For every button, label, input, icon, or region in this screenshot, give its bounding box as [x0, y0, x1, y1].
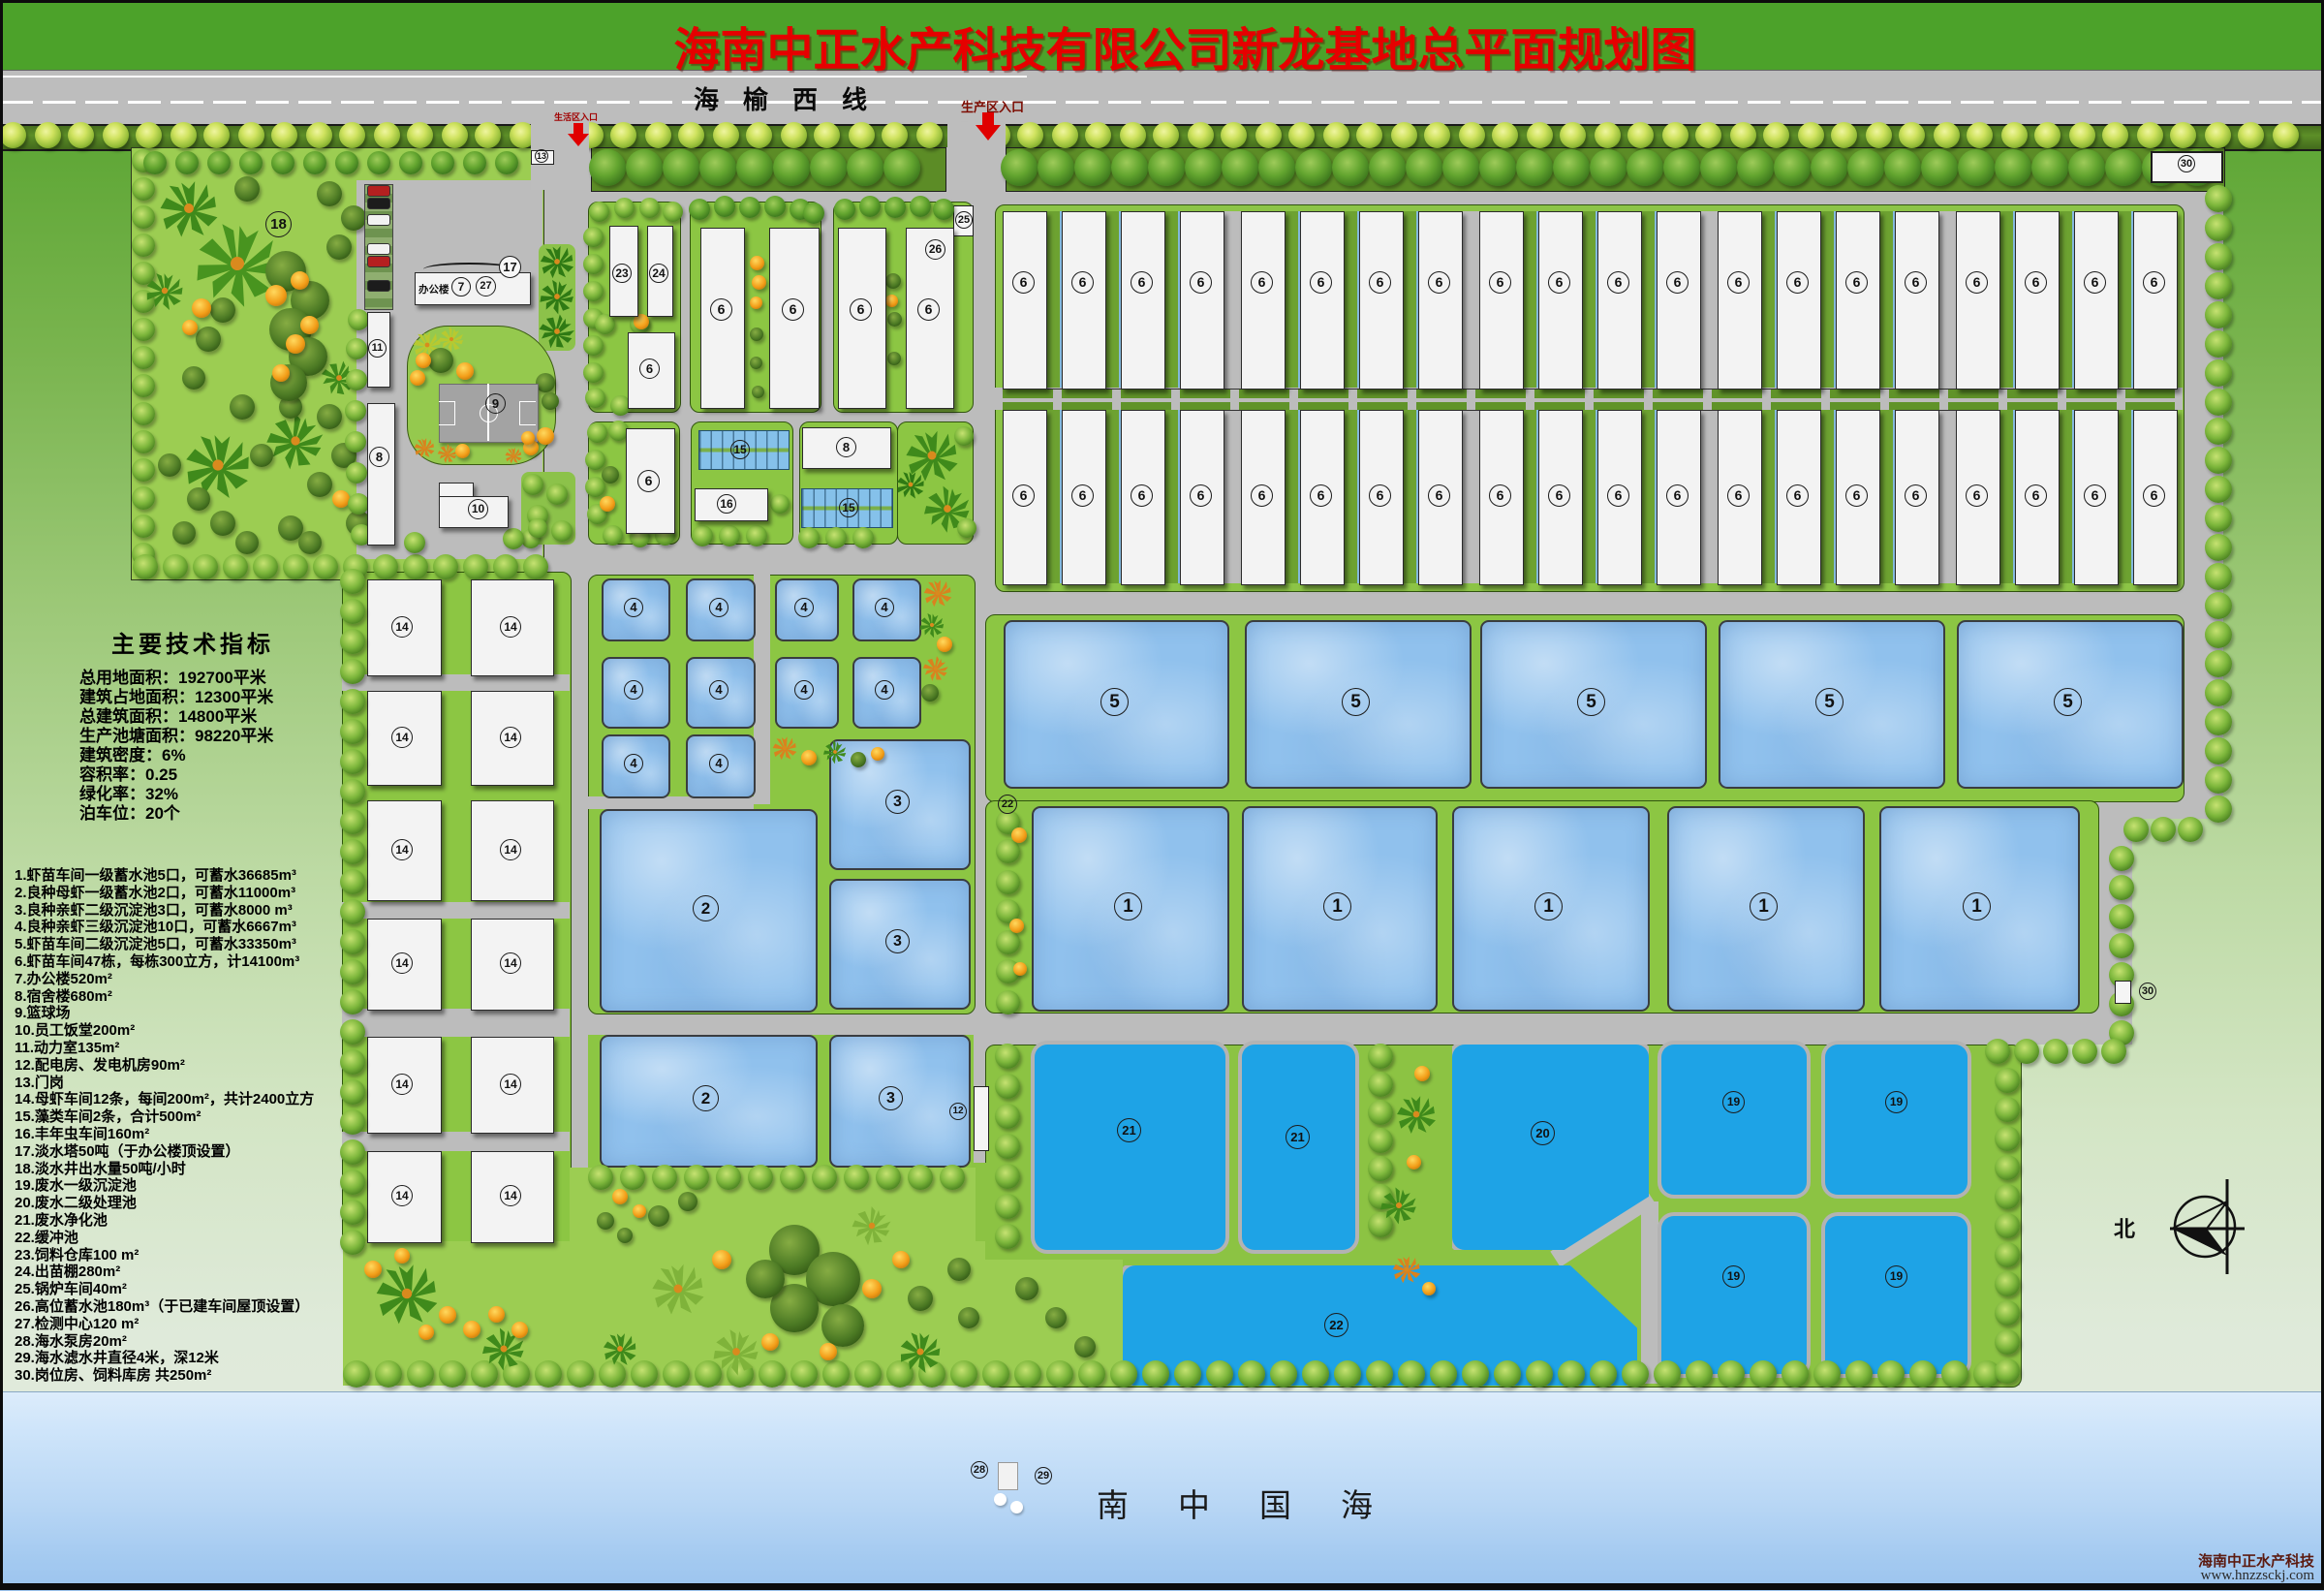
svg-text:北: 北: [2114, 1217, 2135, 1241]
